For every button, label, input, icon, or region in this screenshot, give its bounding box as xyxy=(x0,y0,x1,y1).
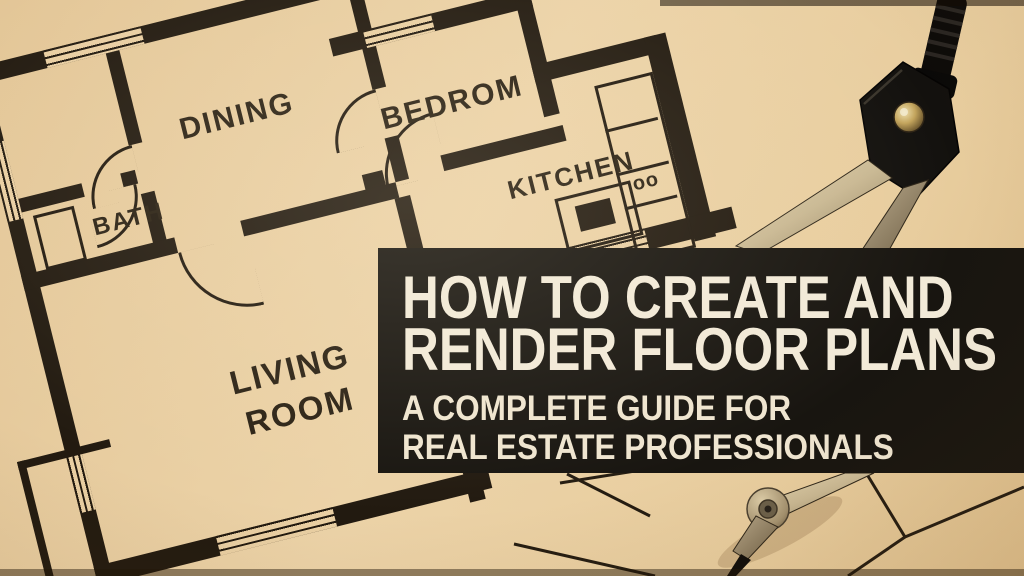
subtitle-block: A COMPLETE GUIDE FOR REAL ESTATE PROFESS… xyxy=(402,389,1024,467)
title-overlay-panel: HOW TO CREATE AND RENDER FLOOR PLANS A C… xyxy=(378,248,1024,473)
compass-pivot-glint xyxy=(900,108,908,116)
paper-edge-shadow-top xyxy=(660,0,1024,6)
paper-edge-shadow-bottom xyxy=(0,569,1024,576)
compass-knee-center xyxy=(765,506,772,513)
title-line-2: RENDER FLOOR PLANS xyxy=(402,324,931,376)
compass-upper-assembly xyxy=(736,0,976,254)
subtitle-line-2: REAL ESTATE PROFESSIONALS xyxy=(402,428,962,467)
subtitle-line-1: A COMPLETE GUIDE FOR xyxy=(402,389,962,428)
hero-image: oo DINING BEDROM KITCHEN BATH LIVING ROO… xyxy=(0,0,1024,576)
compass-pivot-screw xyxy=(894,102,924,132)
compass-leg-right xyxy=(862,180,928,252)
